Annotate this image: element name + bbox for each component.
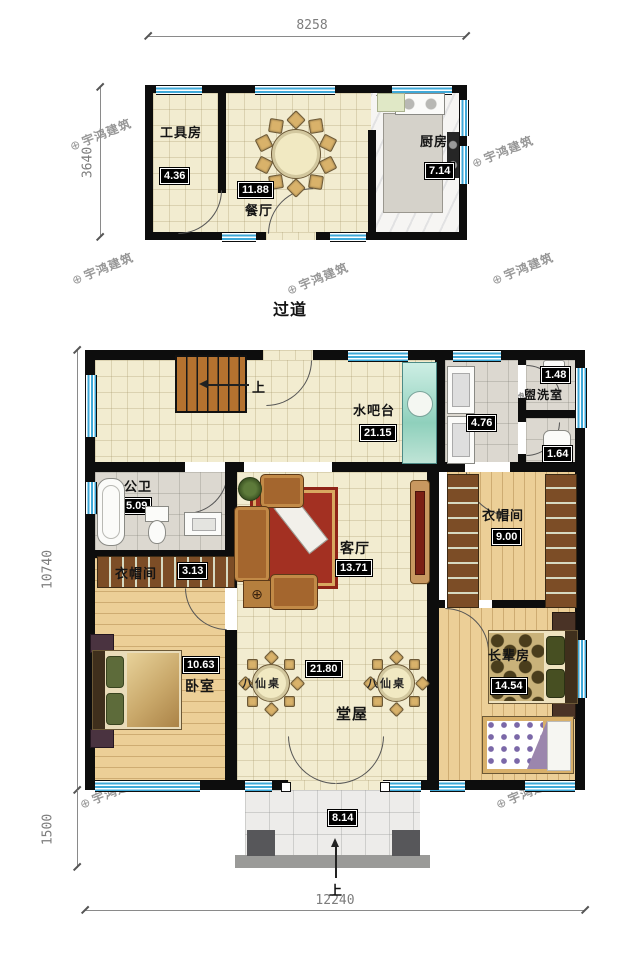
watermark: ⊕宇鸿建筑	[69, 248, 136, 288]
wardrobe	[545, 474, 577, 608]
window	[156, 85, 202, 95]
chair	[409, 659, 420, 670]
area-chip-tool: 4.36	[160, 168, 189, 184]
bed	[92, 650, 182, 730]
entry-arrow	[335, 846, 337, 878]
porch-pier	[247, 830, 275, 856]
dimension-tick	[581, 906, 589, 914]
chair	[372, 659, 383, 670]
door-opening	[263, 350, 313, 360]
chair	[268, 118, 284, 134]
window	[222, 232, 256, 242]
nightstand	[552, 612, 576, 631]
wall	[437, 600, 445, 608]
area-chip-washbasin: 4.76	[467, 415, 496, 431]
bed-headboard	[565, 631, 577, 703]
dining-table-top	[271, 129, 321, 179]
bed-headboard	[93, 651, 105, 729]
stairs-up-label: 上	[252, 377, 265, 396]
wall	[526, 410, 575, 418]
water-bar-sink	[407, 391, 433, 417]
stairs-arrowhead-icon	[199, 380, 207, 388]
chair	[247, 696, 258, 707]
table-label: 八仙桌	[242, 675, 281, 691]
window	[330, 232, 366, 242]
sink-bowl	[192, 518, 216, 531]
cutting-board	[377, 93, 405, 112]
watermark-text: 宇鸿建筑	[482, 133, 535, 165]
room-label-cloakroom-right: 衣帽间	[482, 505, 524, 524]
room-label-bedroom: 卧室	[185, 676, 215, 696]
dimension-line-left-main	[77, 350, 78, 790]
dimension-tick	[462, 32, 470, 40]
chair	[388, 649, 404, 665]
chair	[254, 155, 273, 174]
area-chip-waterbar: 21.15	[360, 425, 396, 441]
washbasin	[447, 366, 475, 414]
chair	[247, 659, 258, 670]
console-runner	[415, 491, 425, 575]
door-jamb	[380, 782, 390, 792]
pillow	[106, 656, 124, 688]
bathtub-basin	[102, 485, 120, 539]
watermark-text: 宇鸿建筑	[82, 250, 135, 282]
watermark: ⊕宇鸿建筑	[284, 258, 351, 298]
nightstand	[90, 729, 114, 748]
room-label-washroom: 盥洗室	[524, 386, 563, 403]
stairs-arrow	[205, 384, 249, 386]
chair	[286, 110, 306, 130]
chair	[263, 649, 279, 665]
watermark: ⊕宇鸿建筑	[469, 131, 536, 171]
area-chip-washroom2: 1.64	[543, 446, 572, 462]
area-chip-bedroom: 10.63	[183, 657, 219, 673]
chair	[286, 178, 306, 198]
wall	[518, 350, 526, 365]
wardrobe	[447, 474, 479, 608]
pillow	[106, 693, 124, 725]
window	[525, 780, 575, 792]
armchair	[270, 574, 318, 610]
dim-left-main: 10740	[41, 540, 56, 600]
bathroom-sink	[184, 512, 222, 536]
single-bed	[482, 716, 574, 774]
window	[245, 780, 272, 792]
window	[85, 482, 97, 514]
dim-top-upper: 8258	[282, 18, 342, 33]
room-label-tool: 工具房	[160, 122, 202, 141]
window	[95, 780, 200, 792]
area-chip-porch: 8.14	[328, 810, 357, 826]
wall	[427, 608, 439, 790]
pillow	[546, 669, 565, 698]
dimension-line-left-upper	[100, 87, 101, 237]
entry-arrowhead-icon	[331, 838, 339, 847]
pillow	[546, 636, 565, 665]
chair	[284, 659, 295, 670]
window	[575, 368, 587, 428]
bed-blanket	[127, 653, 179, 727]
room-label-hall: 堂屋	[336, 703, 368, 724]
bathtub	[97, 478, 125, 546]
dim-left-porch: 1500	[41, 800, 56, 860]
window	[85, 375, 97, 437]
floorplan-canvas: ⊕宇鸿建筑 ⊕宇鸿建筑 ⊕宇鸿建筑 ⊕宇鸿建筑 ⊕宇鸿建筑 ⊕宇鸿建筑 ⊕宇鸿建…	[0, 0, 640, 956]
table-label: 八仙桌	[367, 675, 406, 691]
corridor-label: 过道	[273, 296, 307, 320]
porch-pier	[392, 830, 420, 856]
area-chip-cloakroom-small: 3.13	[178, 563, 207, 579]
room-label-kitchen: 厨房	[420, 131, 448, 150]
room-label-dining: 餐厅	[245, 200, 273, 219]
area-chip-washroom1: 1.48	[541, 367, 570, 383]
window	[453, 350, 501, 362]
console-table	[410, 480, 430, 584]
chair	[319, 134, 338, 153]
armchair	[260, 474, 304, 508]
chair	[409, 696, 420, 707]
room-label-elder: 长辈房	[488, 645, 530, 664]
dim-left-upper: 3640	[81, 133, 96, 193]
wall	[85, 350, 585, 360]
pillow	[547, 721, 571, 771]
wall	[510, 462, 575, 472]
chair	[308, 173, 324, 189]
dimension-line-left-porch	[77, 790, 78, 868]
chair	[284, 696, 295, 707]
entry-up-label: 上	[329, 880, 342, 899]
chair	[372, 696, 383, 707]
chair	[319, 155, 338, 174]
area-chip-cloakroom-right: 9.00	[492, 529, 521, 545]
room-label-cloakroom-small: 衣帽间	[115, 563, 157, 582]
wall-tool-divider	[218, 93, 226, 193]
area-chip-dining: 11.88	[238, 182, 273, 198]
window	[459, 146, 469, 184]
watermark-text: 宇鸿建筑	[502, 250, 555, 282]
porch-step	[235, 855, 430, 868]
sofa	[234, 506, 270, 582]
wall	[145, 85, 153, 240]
water-bar-counter	[402, 362, 437, 464]
dimension-tick	[96, 233, 104, 241]
washbasin-bowl	[452, 373, 470, 407]
chair	[308, 118, 324, 134]
door-jamb	[281, 782, 291, 792]
wall	[85, 462, 185, 472]
toilet	[148, 520, 166, 544]
dimension-tick	[73, 863, 81, 871]
plant	[238, 477, 262, 501]
room-label-living: 客厅	[340, 538, 370, 558]
area-chip-living: 13.71	[336, 560, 372, 576]
dimension-line-bottom	[85, 910, 585, 911]
watermark-text: 宇鸿建筑	[297, 260, 350, 292]
wall	[225, 630, 237, 790]
room-label-waterbar: 水吧台	[353, 400, 395, 419]
area-chip-elder: 14.54	[491, 678, 527, 694]
room-label-bathroom: 公卫	[124, 476, 152, 495]
area-chip-hall: 21.80	[306, 661, 342, 677]
side-table: ⊕	[243, 580, 271, 608]
dimension-line-top	[148, 36, 466, 37]
wall-kitchen-divider	[368, 130, 376, 232]
window	[348, 350, 408, 362]
toilet	[543, 430, 571, 447]
window	[255, 85, 335, 95]
window	[459, 100, 469, 136]
watermark: ⊕宇鸿建筑	[489, 248, 556, 288]
area-chip-kitchen: 7.14	[425, 163, 454, 179]
